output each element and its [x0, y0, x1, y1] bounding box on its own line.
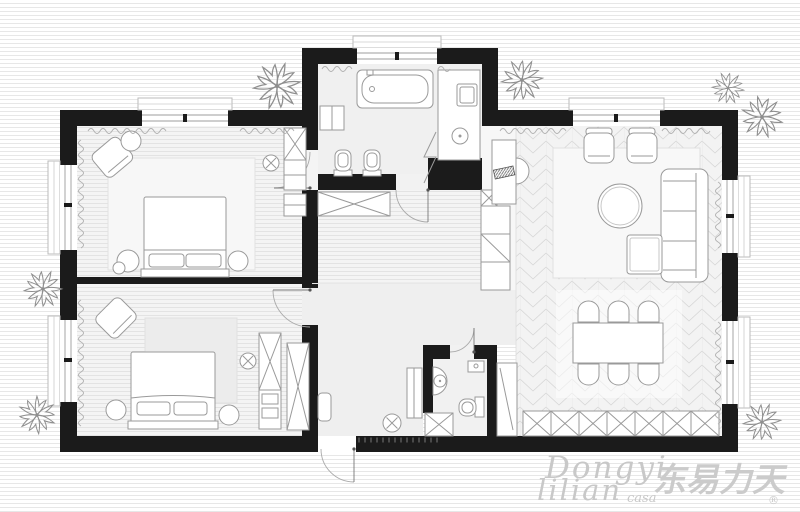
armchair: [584, 128, 614, 163]
entry-door: [318, 436, 356, 482]
wall: [60, 110, 77, 165]
window-master-top: [138, 98, 232, 126]
window-living-top: [569, 98, 664, 126]
bidet: [363, 150, 381, 176]
window-right-upper: [722, 176, 750, 257]
wall: [302, 48, 357, 64]
window-left-upper: [48, 161, 77, 254]
wall: [722, 126, 738, 180]
window-left-lower: [48, 316, 77, 406]
nightstand: [228, 251, 248, 271]
ottoman: [627, 235, 662, 274]
watermark-registered: ®: [768, 494, 779, 507]
plant-sketch: [21, 266, 66, 313]
wall: [660, 110, 738, 126]
nightstand-small: [113, 262, 125, 274]
pillow: [174, 402, 207, 415]
plant-sketch: [734, 89, 790, 145]
cabinet-strip: [481, 206, 510, 290]
dining-chair: [578, 364, 599, 385]
wall: [302, 284, 318, 288]
boiler: [468, 361, 484, 372]
nightstand: [106, 400, 126, 420]
wall: [60, 250, 77, 320]
plant-sketch: [250, 58, 304, 114]
headboard: [141, 269, 229, 277]
double-bed: [128, 352, 218, 429]
wall: [487, 359, 497, 436]
floor-plan: Dongyi lilian casa 东易力天 ®: [0, 0, 800, 512]
nightstand: [219, 405, 239, 425]
double-bed: [141, 197, 229, 277]
dining-chair: [608, 364, 629, 385]
wardrobe: [284, 128, 306, 190]
dining-chair: [578, 301, 599, 322]
bath-door-gap-floor: [396, 174, 428, 190]
watermark: Dongyi lilian casa 东易力天 ®: [537, 450, 792, 507]
wall: [318, 174, 396, 190]
wall: [428, 158, 482, 190]
low-wardrobe: [318, 192, 390, 216]
wall: [60, 402, 77, 452]
coffee-table: [598, 184, 642, 228]
wall: [437, 48, 498, 64]
plant-sketch: [708, 67, 749, 109]
wall: [482, 110, 573, 126]
console-table: [407, 368, 422, 418]
dresser: [284, 194, 306, 216]
window-right-lower: [722, 317, 750, 408]
wall-cabinet: [320, 106, 344, 130]
side-table: [121, 131, 141, 151]
wall: [722, 253, 738, 321]
pouf: [383, 414, 401, 432]
wall: [77, 277, 312, 284]
kitchen-cabinet-row: [523, 411, 719, 436]
dining-chair: [638, 301, 659, 322]
toilet: [334, 150, 352, 176]
pillow: [186, 254, 221, 267]
tv-console: [492, 140, 516, 204]
dining-chair: [638, 364, 659, 385]
headboard: [128, 421, 218, 429]
dining-chair: [608, 301, 629, 322]
pillow: [137, 402, 170, 415]
watermark-script-line2: lilian: [537, 473, 622, 507]
ceiling-light: [263, 155, 279, 171]
tall-cabinet: [497, 363, 517, 436]
pillow: [149, 254, 184, 267]
bathtub: [357, 70, 433, 108]
wardrobe: [287, 343, 309, 430]
ceiling-light: [240, 353, 256, 369]
vanity-counter: [438, 70, 480, 160]
toilet: [459, 397, 484, 417]
plant-sketch: [498, 57, 545, 102]
sofa: [661, 169, 708, 282]
window-bathroom-top: [353, 36, 441, 64]
dining-table: [573, 323, 663, 363]
wall: [474, 345, 497, 359]
wardrobe: [259, 333, 281, 429]
wall: [423, 345, 450, 359]
armchair: [627, 128, 657, 163]
bench: [318, 393, 331, 421]
hall-floor-upper: [318, 283, 516, 345]
storage-box: [425, 413, 453, 436]
wall: [60, 436, 318, 452]
bed2-door-gap-floor: [302, 288, 318, 325]
